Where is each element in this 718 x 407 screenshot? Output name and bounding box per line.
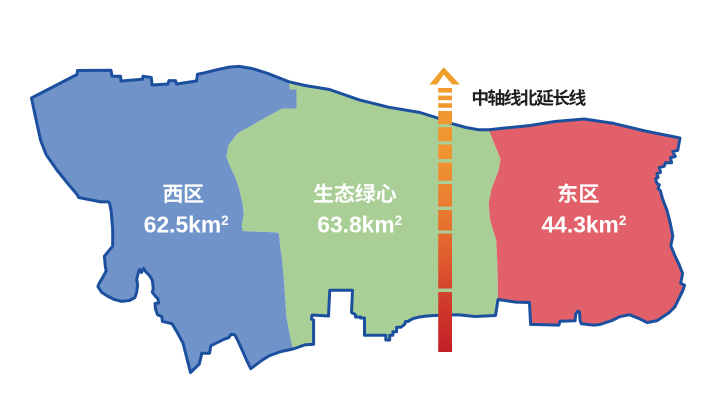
svg-text:44.3km2: 44.3km2 (542, 212, 627, 238)
svg-text:63.8km2: 63.8km2 (317, 212, 402, 238)
svg-text:62.5km2: 62.5km2 (144, 212, 229, 238)
